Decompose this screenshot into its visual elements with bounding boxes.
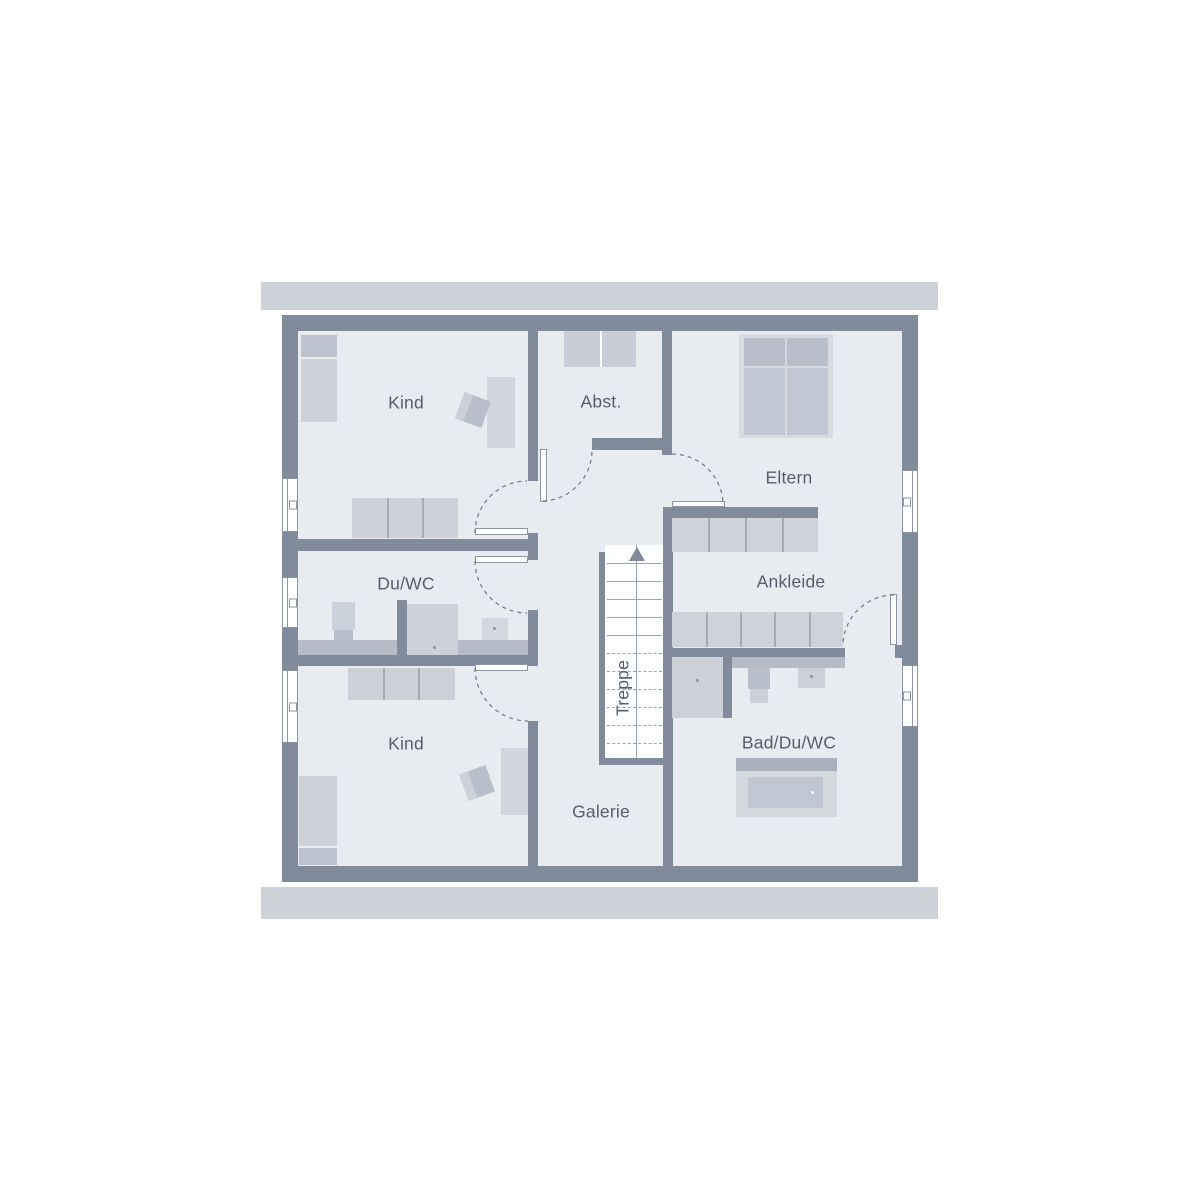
desk [487, 377, 515, 448]
window [902, 665, 918, 727]
bed [301, 359, 337, 422]
wall-kind-abst [528, 331, 538, 481]
wall-abst-right [662, 331, 672, 455]
bidet [798, 668, 825, 688]
stairs-center-line [636, 545, 637, 758]
shower [407, 604, 458, 655]
wall-kind-duwc [292, 539, 528, 551]
room-label-ankleide: Ankleide [757, 572, 826, 593]
bed-pillow [299, 848, 337, 865]
vanity-counter [458, 640, 528, 655]
bathtub [736, 771, 837, 817]
stairs-direction-arrow-icon [629, 547, 645, 561]
vanity-counter [732, 657, 845, 668]
double-bed [739, 334, 833, 438]
wall-galerie-kind [528, 721, 538, 866]
wall-stair-bottom [599, 758, 663, 765]
top-facade-band [261, 282, 938, 310]
room-label-treppe: Treppe [613, 660, 634, 716]
window [282, 478, 298, 532]
bed [299, 776, 337, 846]
window [282, 670, 298, 743]
wall-cap-hall [528, 533, 538, 560]
toilet [748, 668, 770, 689]
outer-wall-bottom [282, 866, 918, 882]
room-label-bad: Bad/Du/WC [742, 733, 836, 754]
door-leaf-kind-top [475, 528, 528, 535]
room-label-duwc: Du/WC [377, 574, 434, 595]
floor-plan: Kind Abst. Eltern Du/WC Ankleide Kind Ba… [0, 0, 1200, 1200]
bathtub-header [736, 758, 837, 771]
door-leaf-duwc [475, 556, 528, 563]
door-leaf-abst [540, 449, 547, 502]
door-leaf-bad [890, 594, 897, 645]
staircase [605, 545, 663, 758]
wardrobe [352, 498, 458, 538]
room-label-eltern: Eltern [766, 468, 813, 489]
desk [501, 748, 528, 815]
wall-bad-shower-stub [723, 648, 732, 718]
washbasin [482, 618, 508, 640]
shower [672, 657, 723, 718]
room-label-kind-top: Kind [388, 393, 424, 414]
door-leaf-kind-bottom [475, 664, 528, 671]
toilet [332, 602, 355, 630]
wall-duwc-stub [397, 600, 407, 666]
wall-stub-duwc [528, 610, 538, 666]
outer-wall-right [902, 315, 918, 882]
toilet-base [750, 689, 768, 703]
wall-bad-door-stub [895, 645, 903, 658]
storage-cabinet [564, 331, 636, 367]
closet-row [672, 612, 843, 647]
room-label-abst: Abst. [581, 392, 622, 413]
wall-abst-bottom [592, 438, 672, 450]
wall-eltern-ankleide [663, 507, 818, 518]
outer-wall-top [282, 315, 918, 331]
bed-pillow [301, 335, 337, 357]
window [282, 577, 298, 628]
room-label-kind-bottom: Kind [388, 734, 424, 755]
bottom-facade-band [261, 887, 938, 919]
closet-row [672, 518, 818, 552]
room-label-galerie: Galerie [572, 802, 630, 823]
wardrobe [348, 668, 455, 700]
vanity-counter [298, 640, 397, 655]
window [902, 470, 918, 533]
door-leaf-eltern [672, 501, 725, 507]
